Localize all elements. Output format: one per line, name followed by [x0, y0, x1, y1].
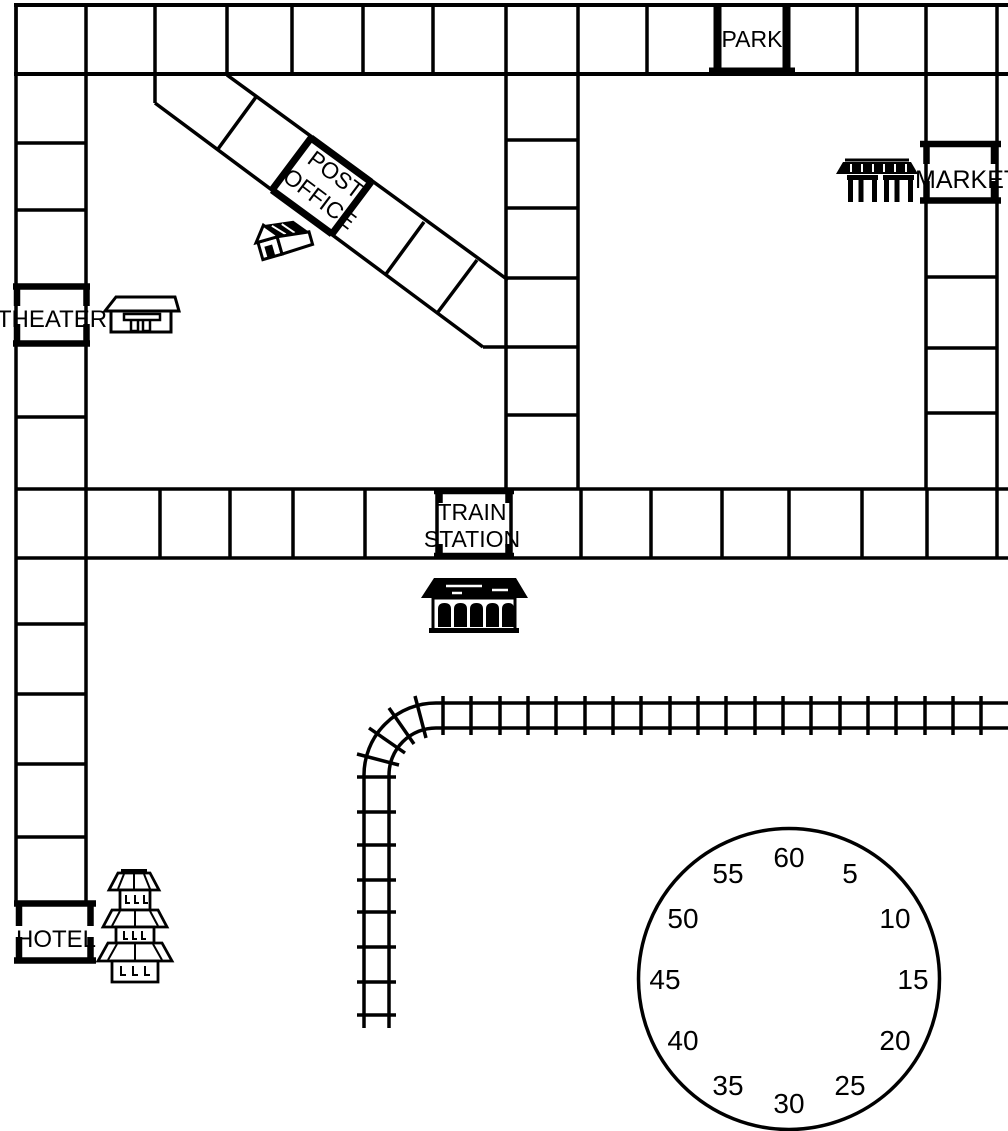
- train-station-label-line2: STATION: [424, 526, 520, 552]
- timer-number-55: 55: [712, 858, 743, 889]
- train-station-icon: [421, 578, 528, 631]
- timer-number-45: 45: [649, 964, 680, 995]
- right-street: [926, 5, 997, 489]
- timer-number-15: 15: [897, 964, 928, 995]
- timer-number-35: 35: [712, 1070, 743, 1101]
- timer-number-40: 40: [667, 1025, 698, 1056]
- timer-number-20: 20: [879, 1025, 910, 1056]
- game-board: 60 5 10 15 20 25 30 35 40 45 50 55 PARK …: [0, 0, 1008, 1131]
- timer-number-10: 10: [879, 903, 910, 934]
- post-office-house-icon: [252, 214, 313, 261]
- park-label: PARK: [722, 26, 784, 52]
- market-label: MARKET: [915, 166, 1008, 194]
- theater-label: THEATER: [0, 306, 107, 333]
- theater-icon: [105, 297, 179, 332]
- station-arches: [438, 603, 514, 627]
- pagoda-body-3: [112, 961, 158, 982]
- timer-dial: 60 5 10 15 20 25 30 35 40 45 50 55: [639, 829, 940, 1130]
- timer-number-50: 50: [667, 903, 698, 934]
- timer-number-60: 60: [773, 842, 804, 873]
- top-street-outline: [14, 5, 1008, 74]
- market-icon: [836, 160, 918, 202]
- middle-street: [506, 74, 578, 489]
- street-grid: [14, 4, 1008, 901]
- station-roof: [421, 578, 528, 598]
- left-street: [16, 5, 86, 901]
- market-stalls: [847, 178, 914, 203]
- pagoda-body-2: [116, 927, 154, 943]
- train-station-label-line1: TRAIN: [438, 499, 507, 525]
- timer-number-30: 30: [773, 1088, 804, 1119]
- hotel-pagoda-icon: [98, 871, 172, 982]
- bottom-street-dividers: [160, 489, 997, 558]
- timer-number-5: 5: [842, 858, 858, 889]
- timer-circle: [639, 829, 940, 1130]
- hotel-label: HOTEL: [16, 926, 96, 953]
- theater-roof: [105, 297, 179, 311]
- timer-number-25: 25: [834, 1070, 865, 1101]
